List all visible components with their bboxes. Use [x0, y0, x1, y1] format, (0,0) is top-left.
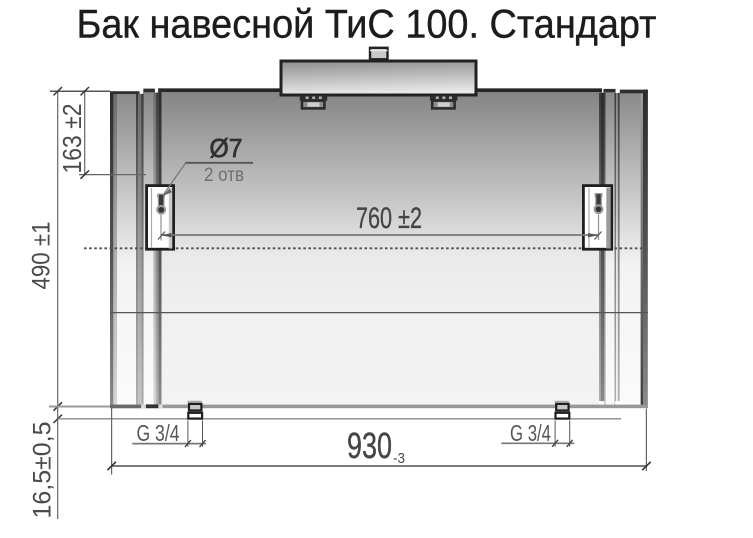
- svg-text:Ø7: Ø7: [210, 133, 243, 163]
- svg-text:Бак навесной ТиС 100. Стандарт: Бак навесной ТиС 100. Стандарт: [77, 3, 657, 47]
- svg-text:930: 930: [347, 425, 392, 466]
- svg-text:16,5±0,5: 16,5±0,5: [29, 422, 57, 519]
- svg-text:-3: -3: [393, 450, 405, 467]
- svg-text:760 ±2: 760 ±2: [356, 202, 422, 235]
- svg-text:490 ±1: 490 ±1: [28, 222, 56, 290]
- svg-text:G 3/4: G 3/4: [137, 420, 180, 446]
- svg-text:2 отв: 2 отв: [204, 164, 244, 186]
- svg-text:163 ±2: 163 ±2: [57, 104, 87, 174]
- svg-text:G 3/4: G 3/4: [510, 420, 551, 446]
